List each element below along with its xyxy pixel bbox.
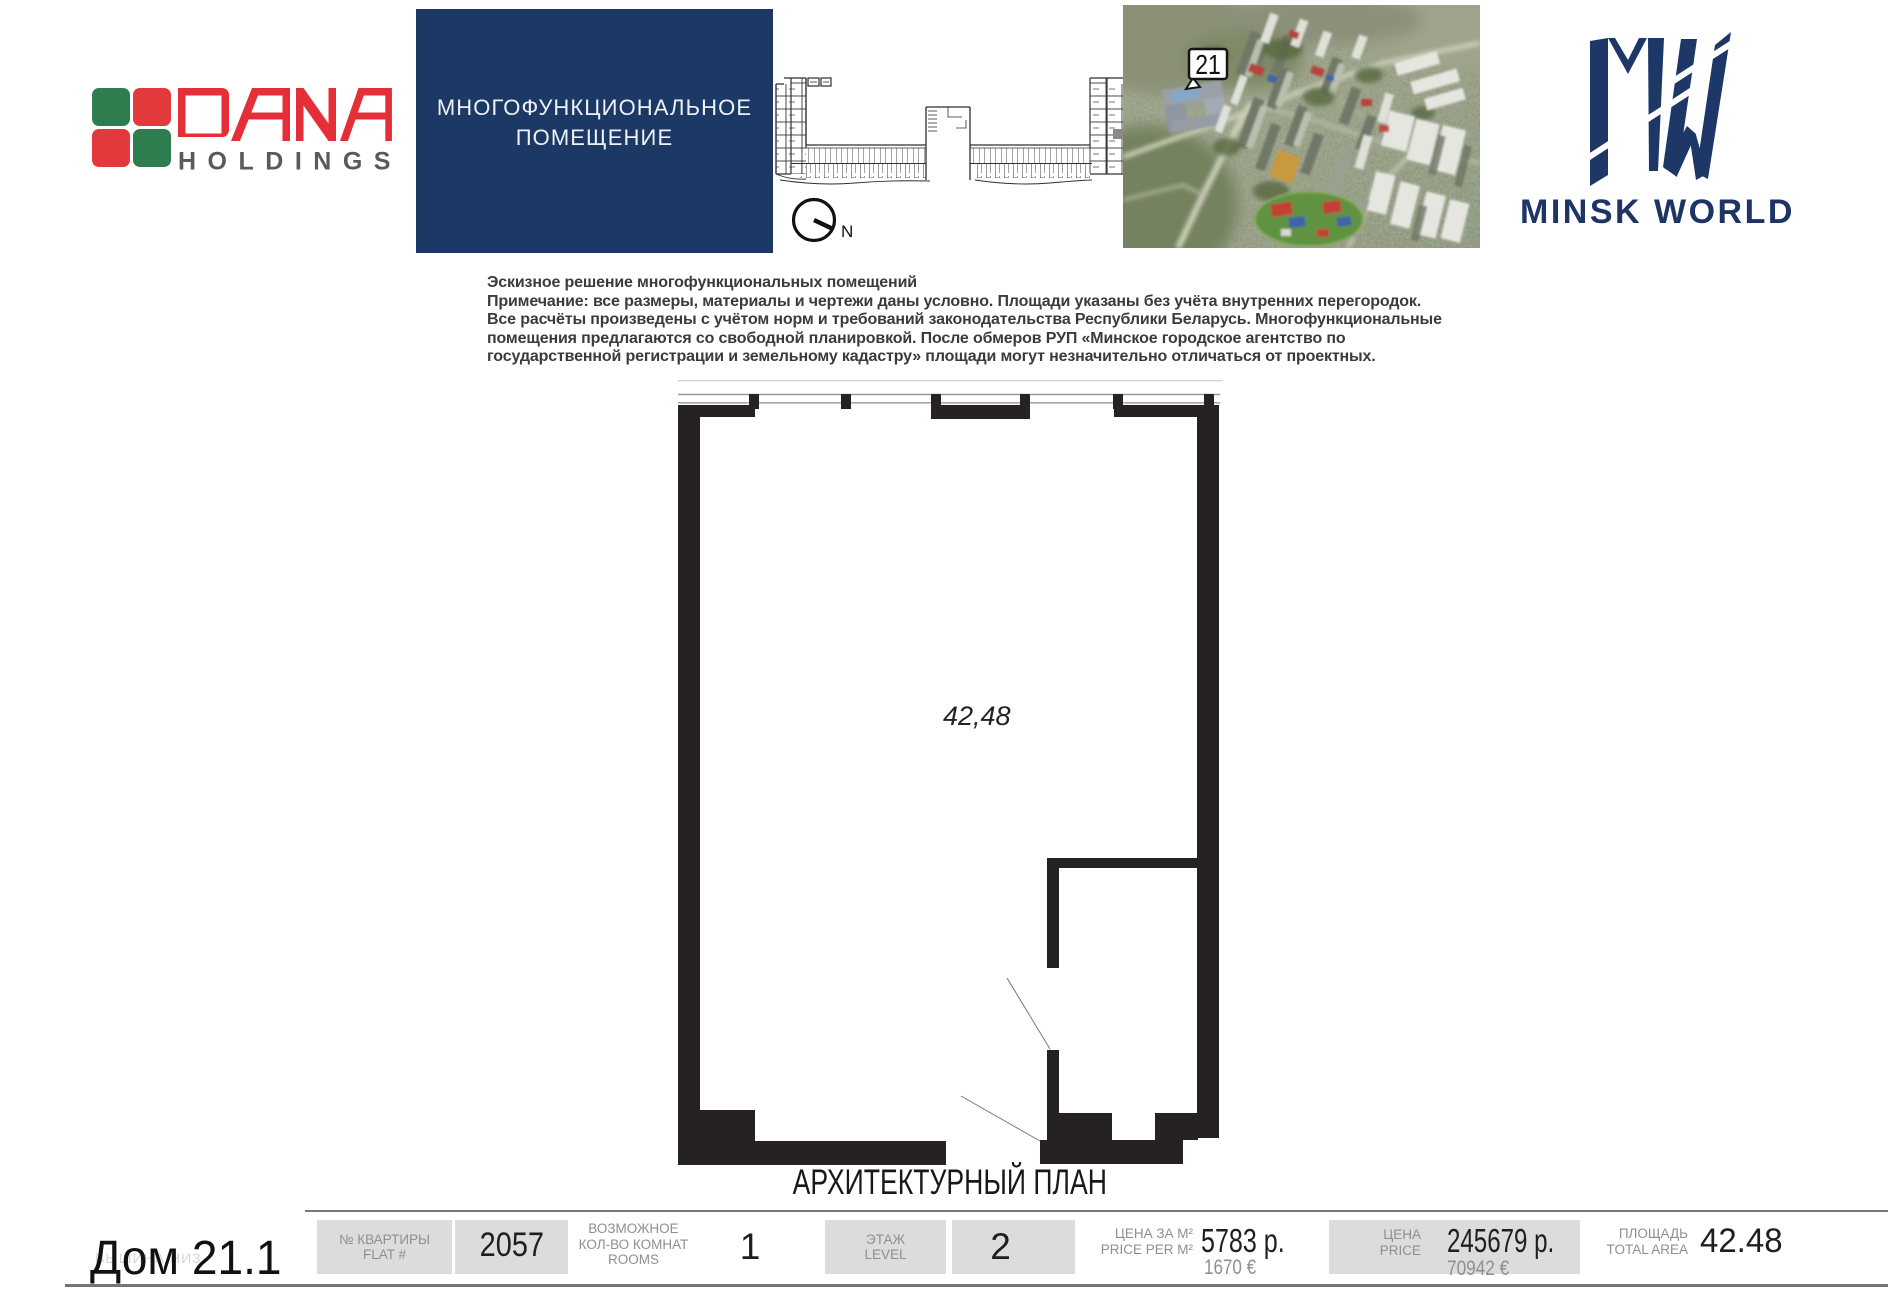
svg-text:HOLDINGS: HOLDINGS bbox=[178, 148, 398, 175]
svg-text:42,48: 42,48 bbox=[943, 701, 1011, 731]
svg-text:MINSK WORLD: MINSK WORLD bbox=[1520, 193, 1795, 228]
svg-text:21: 21 bbox=[1195, 50, 1221, 81]
svg-text:N: N bbox=[841, 222, 853, 241]
